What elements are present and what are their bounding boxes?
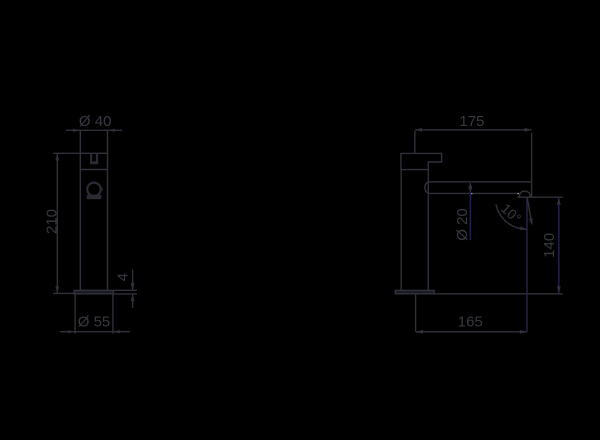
svg-text:175: 175: [459, 113, 484, 130]
svg-text:Ø 55: Ø 55: [78, 313, 111, 330]
svg-text:165: 165: [458, 313, 483, 330]
svg-text:Ø 40: Ø 40: [79, 113, 112, 130]
svg-text:210: 210: [43, 209, 60, 234]
svg-text:Ø 20: Ø 20: [454, 208, 471, 241]
svg-text:4: 4: [115, 273, 132, 281]
svg-text:140: 140: [541, 233, 558, 258]
